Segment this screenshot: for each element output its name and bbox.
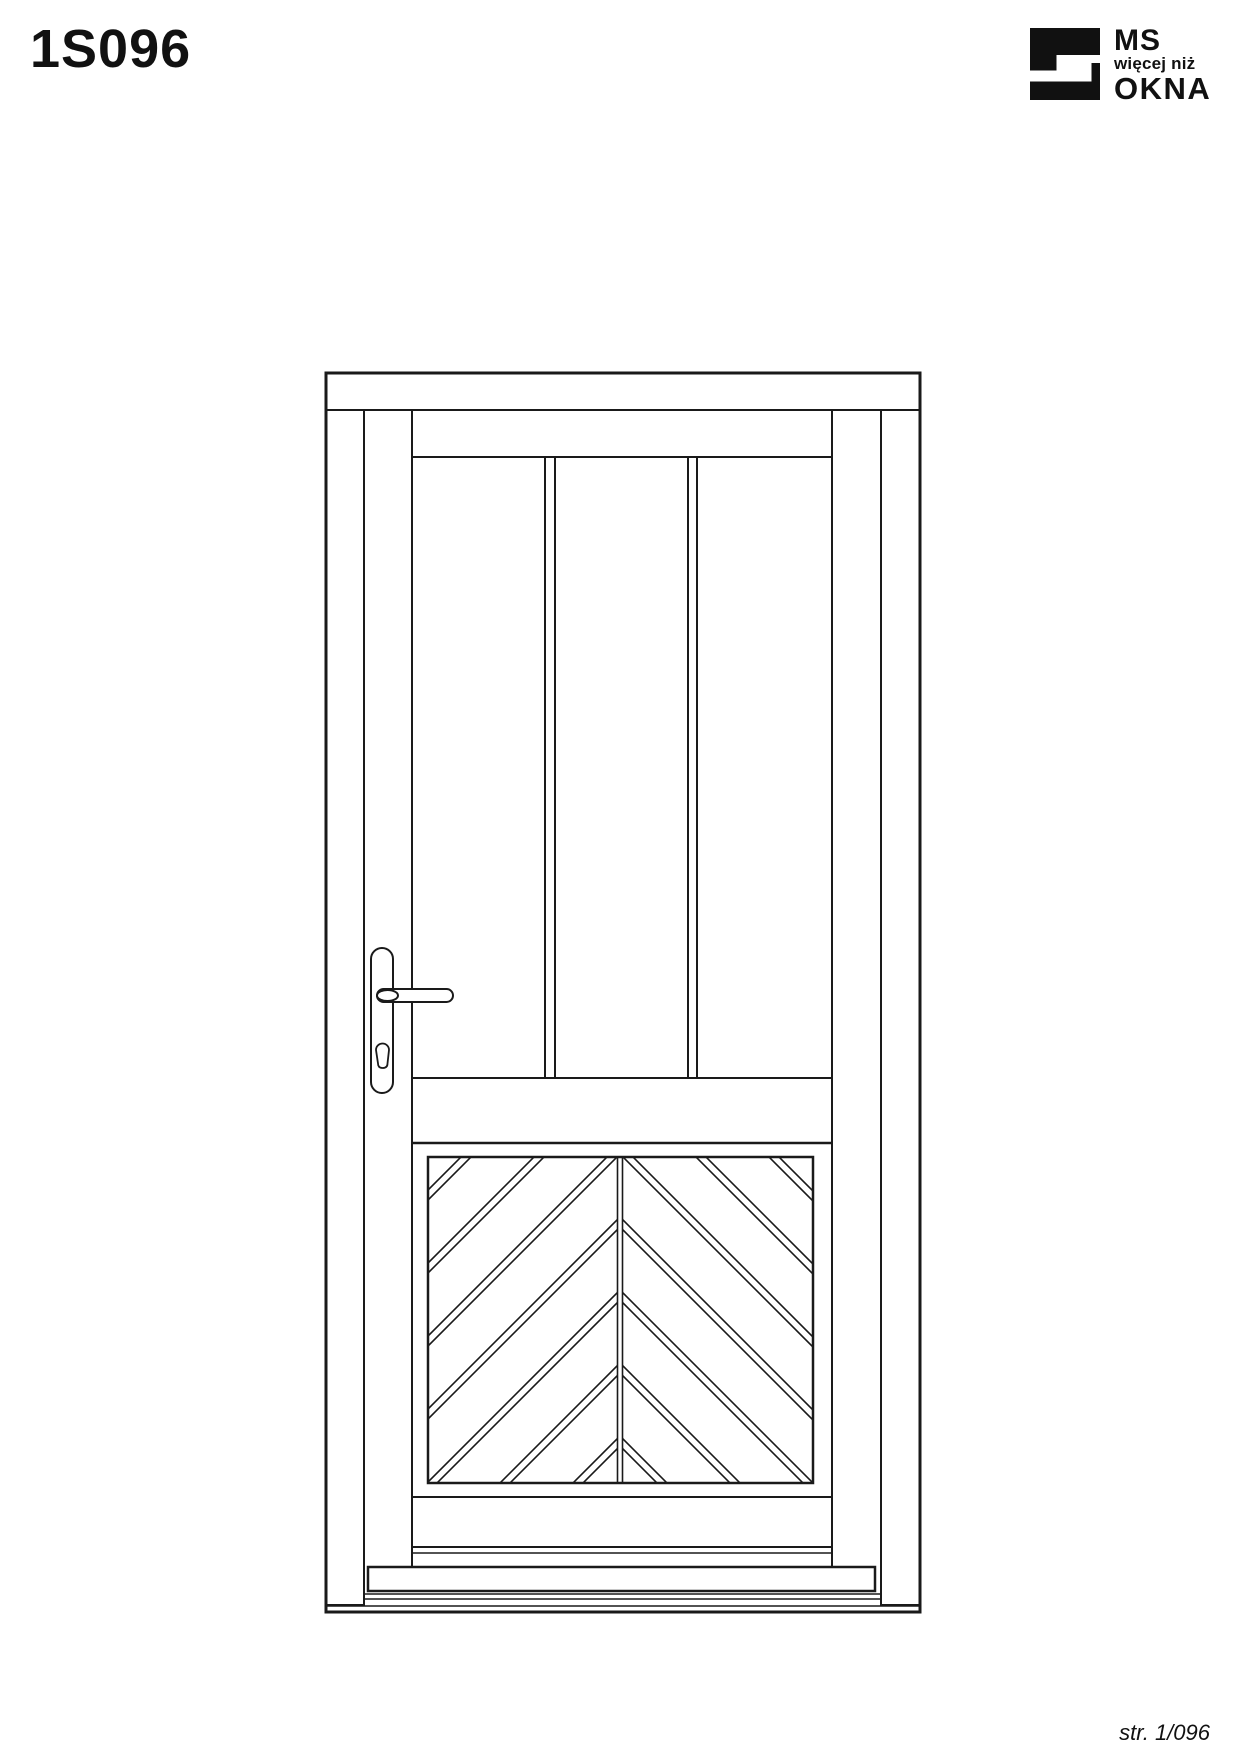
chevron-line xyxy=(622,1073,813,1264)
chevron-line xyxy=(622,1000,813,1191)
catalog-page: 1S096 MS więcej niż OKNA xyxy=(0,0,1240,1755)
chevron-line xyxy=(622,1302,813,1493)
chevron-line xyxy=(622,1229,813,1420)
chevron-line xyxy=(622,1146,813,1337)
chevron-line xyxy=(622,1219,813,1410)
chevron-line xyxy=(428,1000,618,1190)
handle-keyhole-icon xyxy=(376,1044,389,1069)
chevron-line xyxy=(428,1073,618,1263)
frame-jamb-right xyxy=(881,410,920,1605)
threshold xyxy=(368,1567,875,1591)
glass-pane-2 xyxy=(555,457,688,1078)
chevron-line xyxy=(428,1365,618,1555)
glass-pane-3 xyxy=(697,457,832,1078)
chevron-line xyxy=(428,1156,618,1346)
page-number: str. 1/096 xyxy=(1119,1720,1210,1746)
chevron-line xyxy=(428,1292,618,1482)
door-drawing xyxy=(0,0,1240,1755)
chevron-line xyxy=(428,1083,618,1273)
handle-lever-boss xyxy=(377,990,398,1001)
chevron-pattern-right xyxy=(622,1000,813,1639)
chevron-line xyxy=(622,1292,813,1483)
glass-pane-1 xyxy=(412,457,545,1078)
chevron-line xyxy=(428,1146,618,1336)
chevron-line xyxy=(428,1229,618,1419)
chevron-line xyxy=(428,1010,618,1200)
chevron-line xyxy=(622,1375,813,1566)
chevron-pattern-left xyxy=(428,1000,618,1638)
handle-backplate xyxy=(371,948,393,1093)
chevron-line xyxy=(622,1010,813,1201)
chevron-line xyxy=(622,1448,813,1639)
chevron-line xyxy=(622,1438,813,1629)
chevron-line xyxy=(622,1156,813,1347)
chevron-line xyxy=(428,1448,618,1638)
chevron-line xyxy=(428,1219,618,1409)
frame-jamb-left xyxy=(326,410,364,1605)
chevron-line xyxy=(622,1083,813,1274)
chevron-line xyxy=(622,1365,813,1556)
chevron-line xyxy=(428,1375,618,1565)
chevron-line xyxy=(428,1302,618,1492)
